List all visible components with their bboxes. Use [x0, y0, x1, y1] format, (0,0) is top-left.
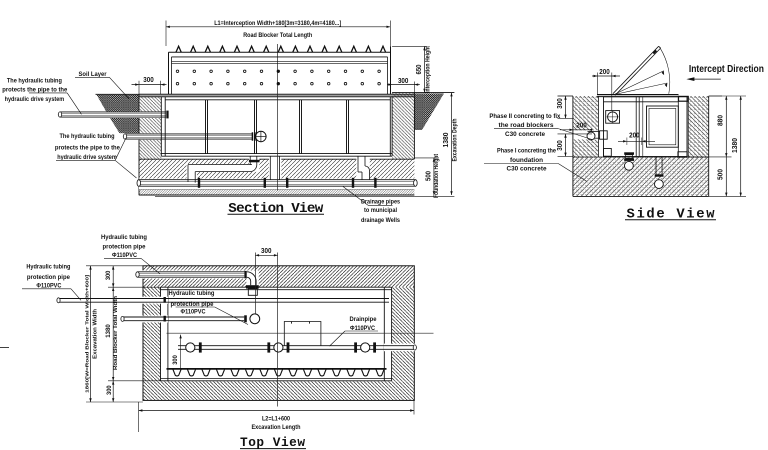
svg-text:300: 300 [398, 78, 409, 85]
svg-text:Hydraulic tubing: Hydraulic tubing [26, 263, 70, 270]
svg-text:the road blockers: the road blockers [499, 122, 554, 129]
svg-text:Φ110PVC: Φ110PVC [181, 309, 206, 316]
svg-text:hydraulic drive system: hydraulic drive system [5, 96, 65, 103]
svg-text:foundation: foundation [510, 157, 543, 164]
svg-text:Road Blocker Total Width: Road Blocker Total Width [113, 296, 119, 370]
svg-text:Road Blocker Total Length: Road Blocker Total Length [243, 32, 312, 39]
svg-text:880: 880 [718, 115, 725, 126]
svg-text:500: 500 [718, 169, 725, 180]
svg-text:Φ110PVC: Φ110PVC [112, 252, 137, 259]
svg-text:Excavation Depth: Excavation Depth [452, 119, 459, 162]
svg-text:Phase II concreting to fix: Phase II concreting to fix [489, 113, 560, 120]
svg-text:L2=L1+600: L2=L1+600 [262, 415, 290, 422]
svg-text:500: 500 [425, 171, 432, 181]
svg-text:Intercept Direction: Intercept Direction [689, 63, 764, 75]
svg-text:1380: 1380 [732, 138, 739, 153]
svg-text:Excavation Length: Excavation Length [252, 424, 301, 431]
svg-text:300: 300 [557, 98, 564, 109]
svg-text:Interception Height: Interception Height [424, 45, 431, 93]
svg-text:to municipal: to municipal [364, 207, 397, 214]
svg-text:1380: 1380 [443, 132, 450, 147]
svg-text:The hydraulic tubing: The hydraulic tubing [7, 77, 62, 84]
svg-text:Drainpipe: Drainpipe [350, 316, 377, 323]
svg-text:1860[W=Road Blocker Total Widt: 1860[W=Road Blocker Total Width+600] [85, 274, 91, 392]
svg-text:Phase I concreting the: Phase I concreting the [497, 148, 556, 155]
svg-text:C30 concrete: C30 concrete [507, 165, 547, 172]
svg-text:200: 200 [599, 69, 610, 76]
svg-text:300: 300 [172, 355, 179, 365]
svg-text:drainage Wells: drainage Wells [361, 217, 400, 224]
svg-text:Hydraulic tubing: Hydraulic tubing [169, 290, 215, 297]
svg-text:The hydraulic tubing: The hydraulic tubing [60, 133, 115, 140]
svg-text:C30 concrete: C30 concrete [505, 131, 545, 138]
svg-text:Excavation Width: Excavation Width [93, 309, 99, 359]
svg-text:300: 300 [106, 385, 113, 395]
svg-text:300: 300 [105, 270, 112, 280]
svg-text:protection pipe: protection pipe [103, 244, 146, 251]
svg-text:300: 300 [557, 140, 564, 151]
svg-text:Hydraulic tubing: Hydraulic tubing [101, 234, 147, 241]
svg-text:L1=Interception Width+180[3m=3: L1=Interception Width+180[3m=3180,4m=418… [214, 20, 341, 27]
svg-text:1380: 1380 [105, 324, 112, 338]
svg-text:200: 200 [576, 122, 587, 129]
svg-text:Foundation Height: Foundation Height [433, 153, 440, 198]
svg-text:protection pipe: protection pipe [27, 274, 70, 281]
svg-text:300: 300 [261, 248, 272, 255]
svg-text:protects the pipe to the: protects the pipe to the [55, 144, 120, 151]
svg-text:Top View: Top View [240, 435, 305, 450]
svg-text:650: 650 [416, 64, 423, 74]
svg-text:300: 300 [143, 77, 154, 84]
svg-text:hydraulic drive system: hydraulic drive system [57, 154, 117, 161]
svg-text:200: 200 [629, 133, 640, 140]
